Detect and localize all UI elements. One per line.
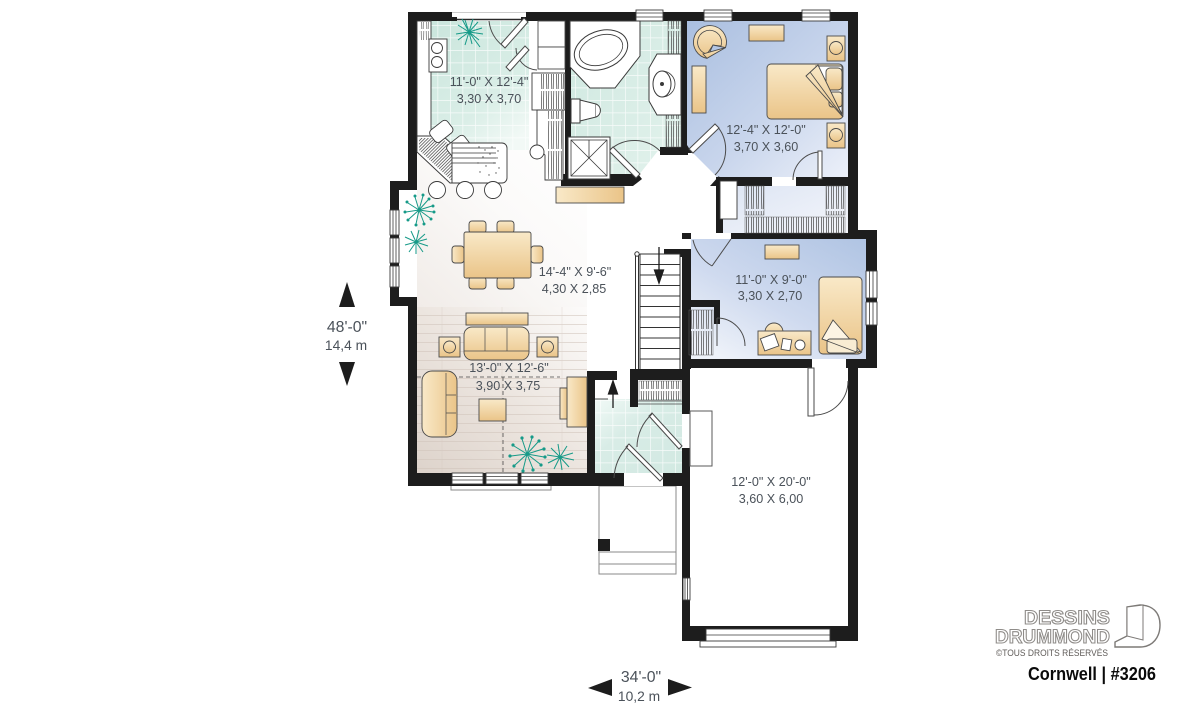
- svg-text:14'-4" X 9'-6": 14'-4" X 9'-6": [539, 265, 612, 279]
- svg-text:3,30 X 3,70: 3,30 X 3,70: [457, 92, 521, 106]
- svg-text:48'-0": 48'-0": [327, 319, 367, 336]
- svg-text:34'-0": 34'-0": [621, 669, 661, 686]
- svg-text:DRUMMOND: DRUMMOND: [995, 626, 1110, 648]
- svg-text:11'-0" X 9'-0": 11'-0" X 9'-0": [735, 273, 807, 287]
- svg-text:Cornwell | #3206: Cornwell | #3206: [1028, 663, 1156, 684]
- svg-text:12'-0" X 20'-0": 12'-0" X 20'-0": [731, 475, 811, 489]
- svg-text:3,90 X 3,75: 3,90 X 3,75: [476, 379, 540, 393]
- svg-text:3,60 X 6,00: 3,60 X 6,00: [739, 492, 803, 506]
- svg-text:©TOUS DROITS RÉSERVÉS: ©TOUS DROITS RÉSERVÉS: [996, 648, 1108, 658]
- svg-text:4,30 X 2,85: 4,30 X 2,85: [542, 282, 606, 296]
- svg-text:3,30 X 2,70: 3,30 X 2,70: [738, 289, 802, 303]
- svg-text:11'-0" X 12'-4": 11'-0" X 12'-4": [450, 75, 529, 89]
- svg-text:10,2 m: 10,2 m: [618, 689, 660, 704]
- svg-text:14,4 m: 14,4 m: [325, 338, 367, 353]
- svg-text:3,70 X 3,60: 3,70 X 3,60: [734, 140, 798, 154]
- svg-text:12'-4" X 12'-0": 12'-4" X 12'-0": [726, 123, 806, 137]
- svg-text:13'-0" X 12'-6": 13'-0" X 12'-6": [469, 361, 549, 375]
